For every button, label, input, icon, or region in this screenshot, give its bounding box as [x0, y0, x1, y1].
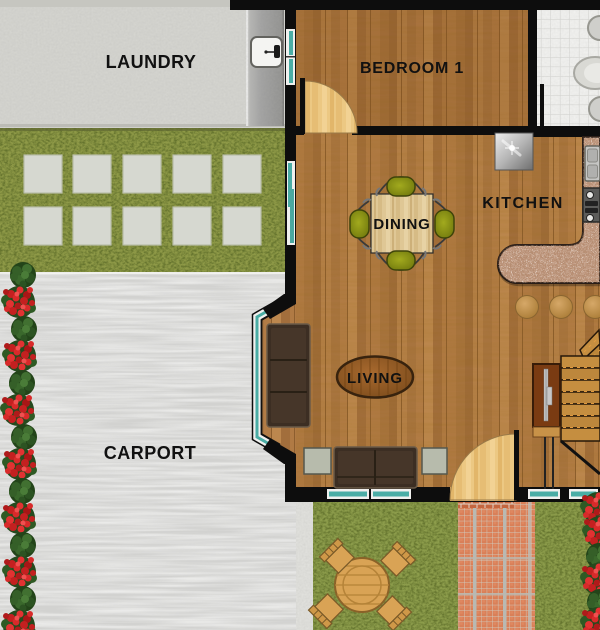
svg-text:CARPORT: CARPORT	[104, 443, 197, 463]
svg-text:KITCHEN: KITCHEN	[482, 195, 564, 212]
svg-text:BEDROOM 1: BEDROOM 1	[360, 60, 464, 77]
svg-text:LIVING: LIVING	[347, 370, 403, 387]
svg-text:LAUNDRY: LAUNDRY	[106, 52, 197, 72]
svg-text:DINING: DINING	[373, 216, 430, 233]
